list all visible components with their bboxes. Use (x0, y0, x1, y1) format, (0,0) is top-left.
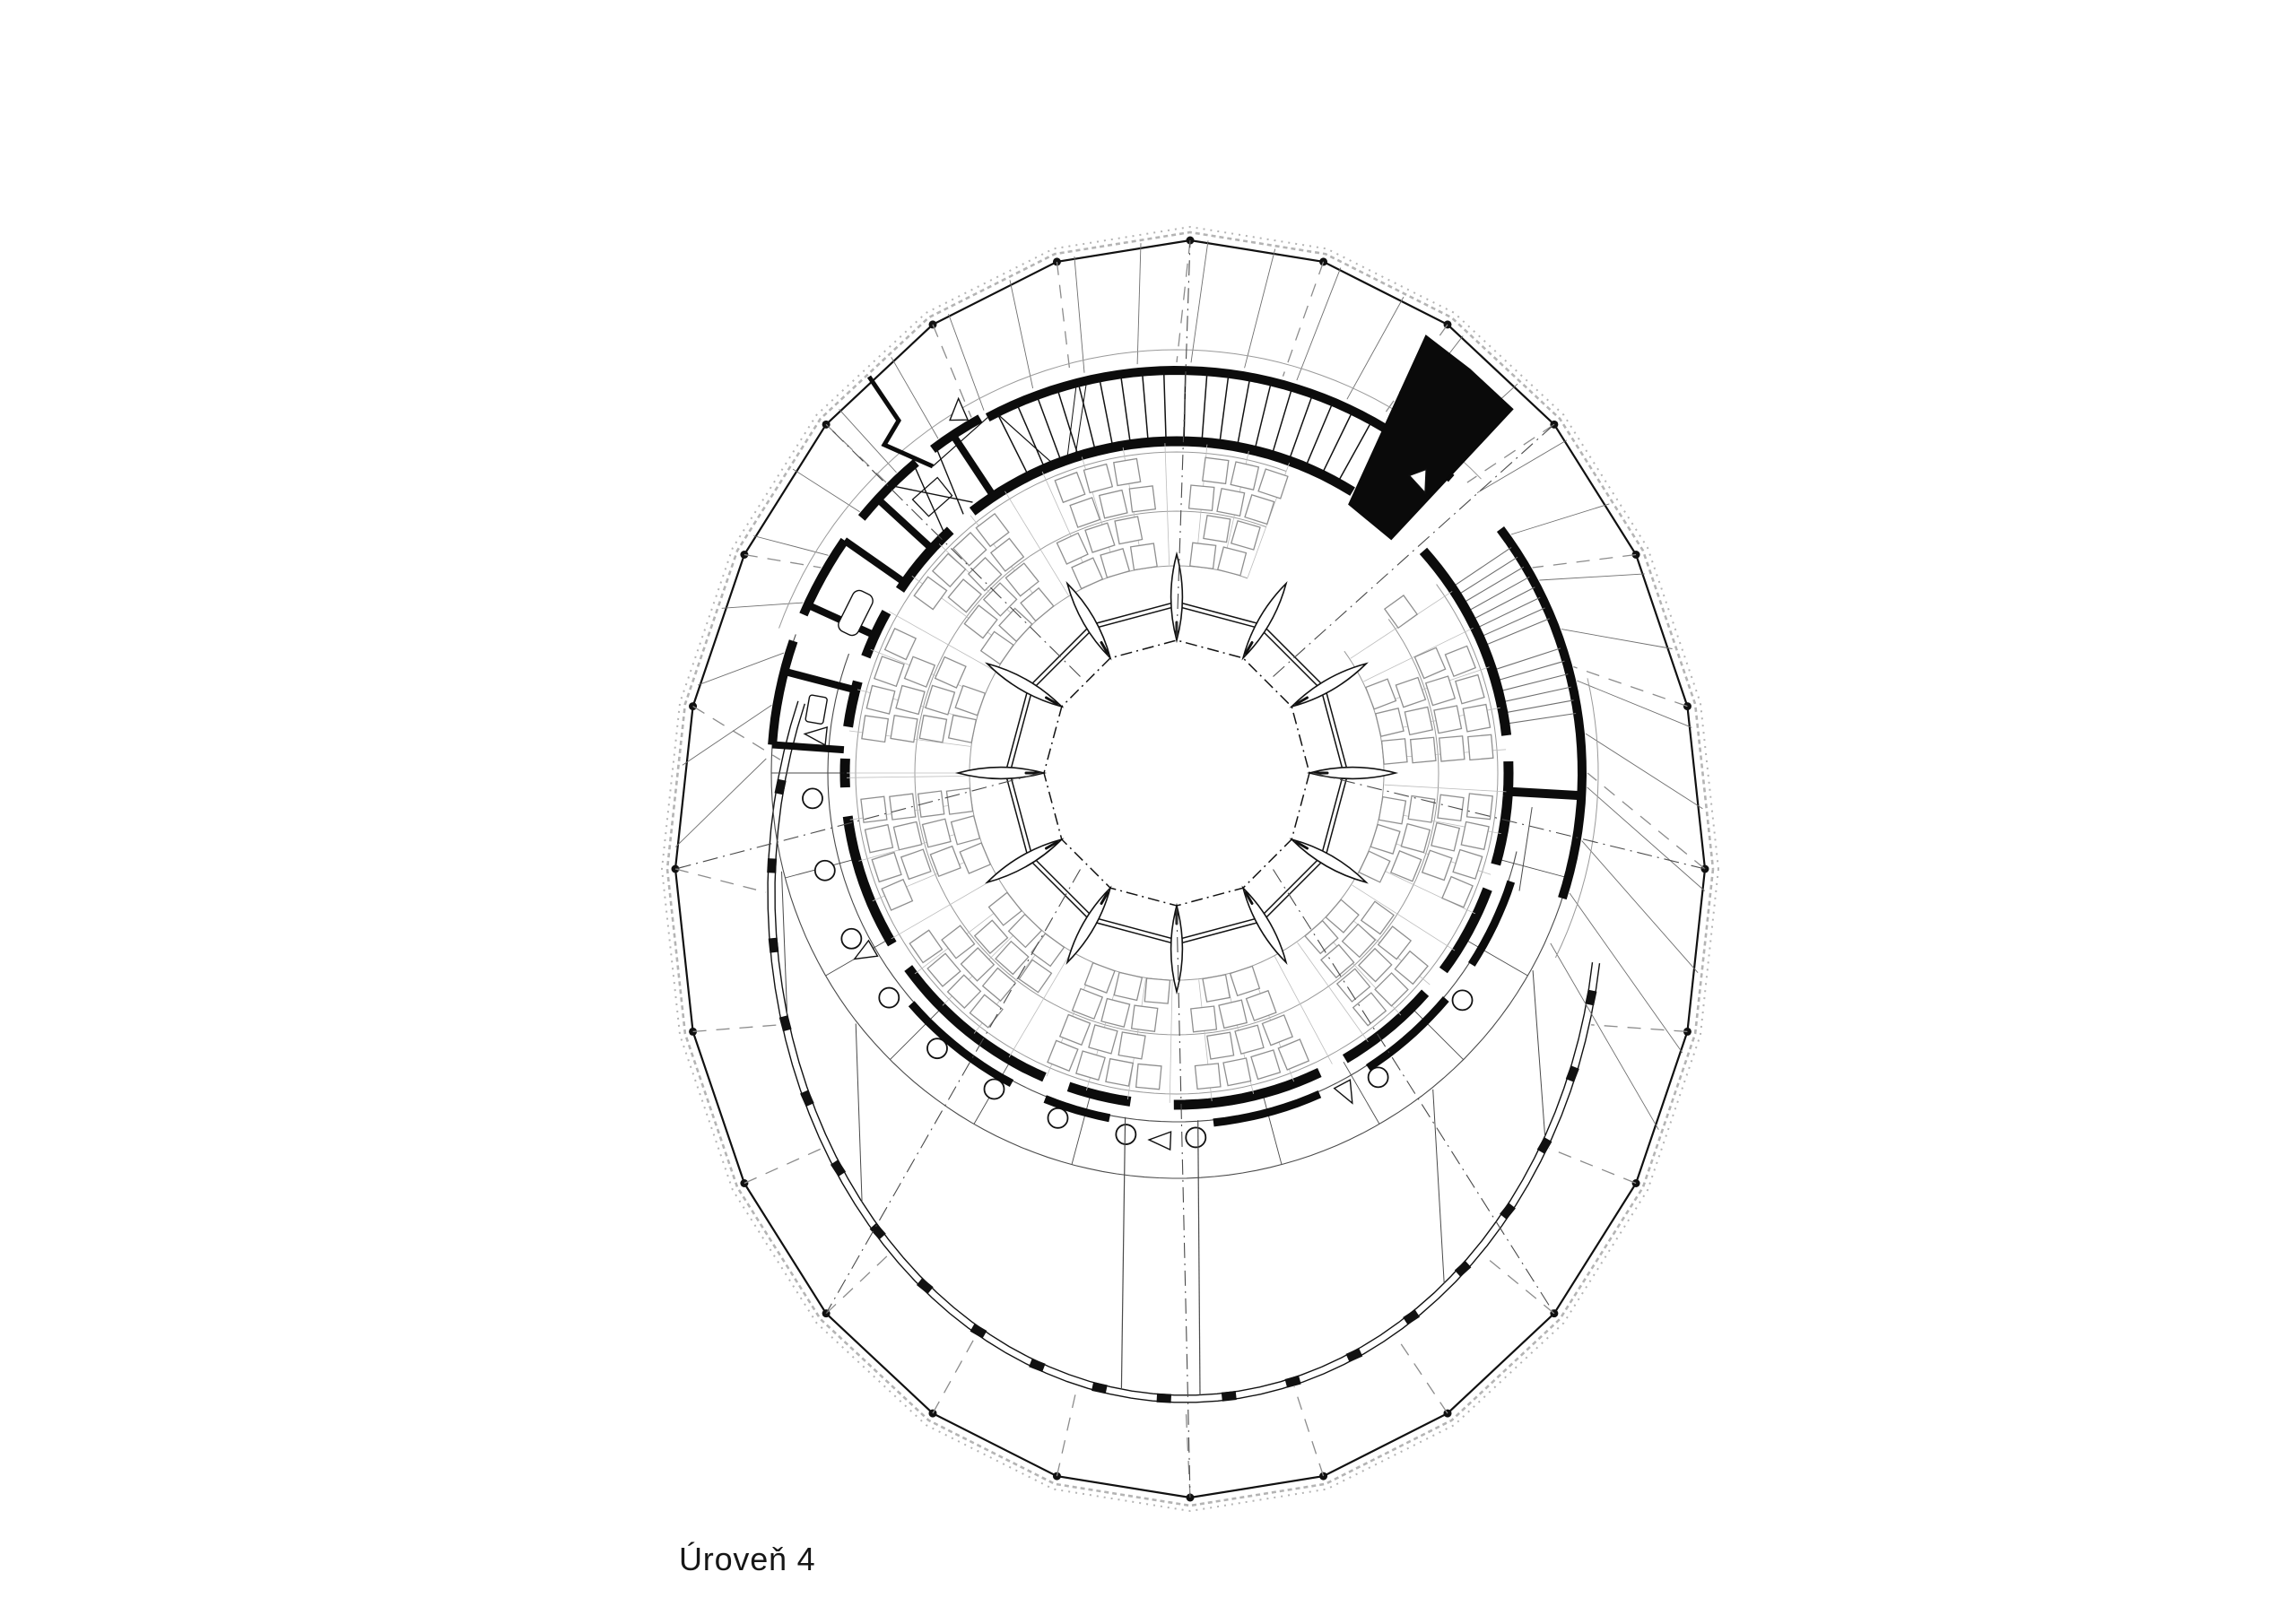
level-label: Úroveň 4 (679, 1541, 815, 1578)
floor-plan-page: Úroveň 4 (0, 0, 2296, 1624)
seating-rows (861, 457, 1493, 1089)
bowl-interior-lines (847, 443, 1506, 1103)
floor-plan-drawing (0, 0, 2296, 1624)
lower-structure (782, 872, 1545, 1395)
solid-core-wedge (1349, 336, 1512, 539)
